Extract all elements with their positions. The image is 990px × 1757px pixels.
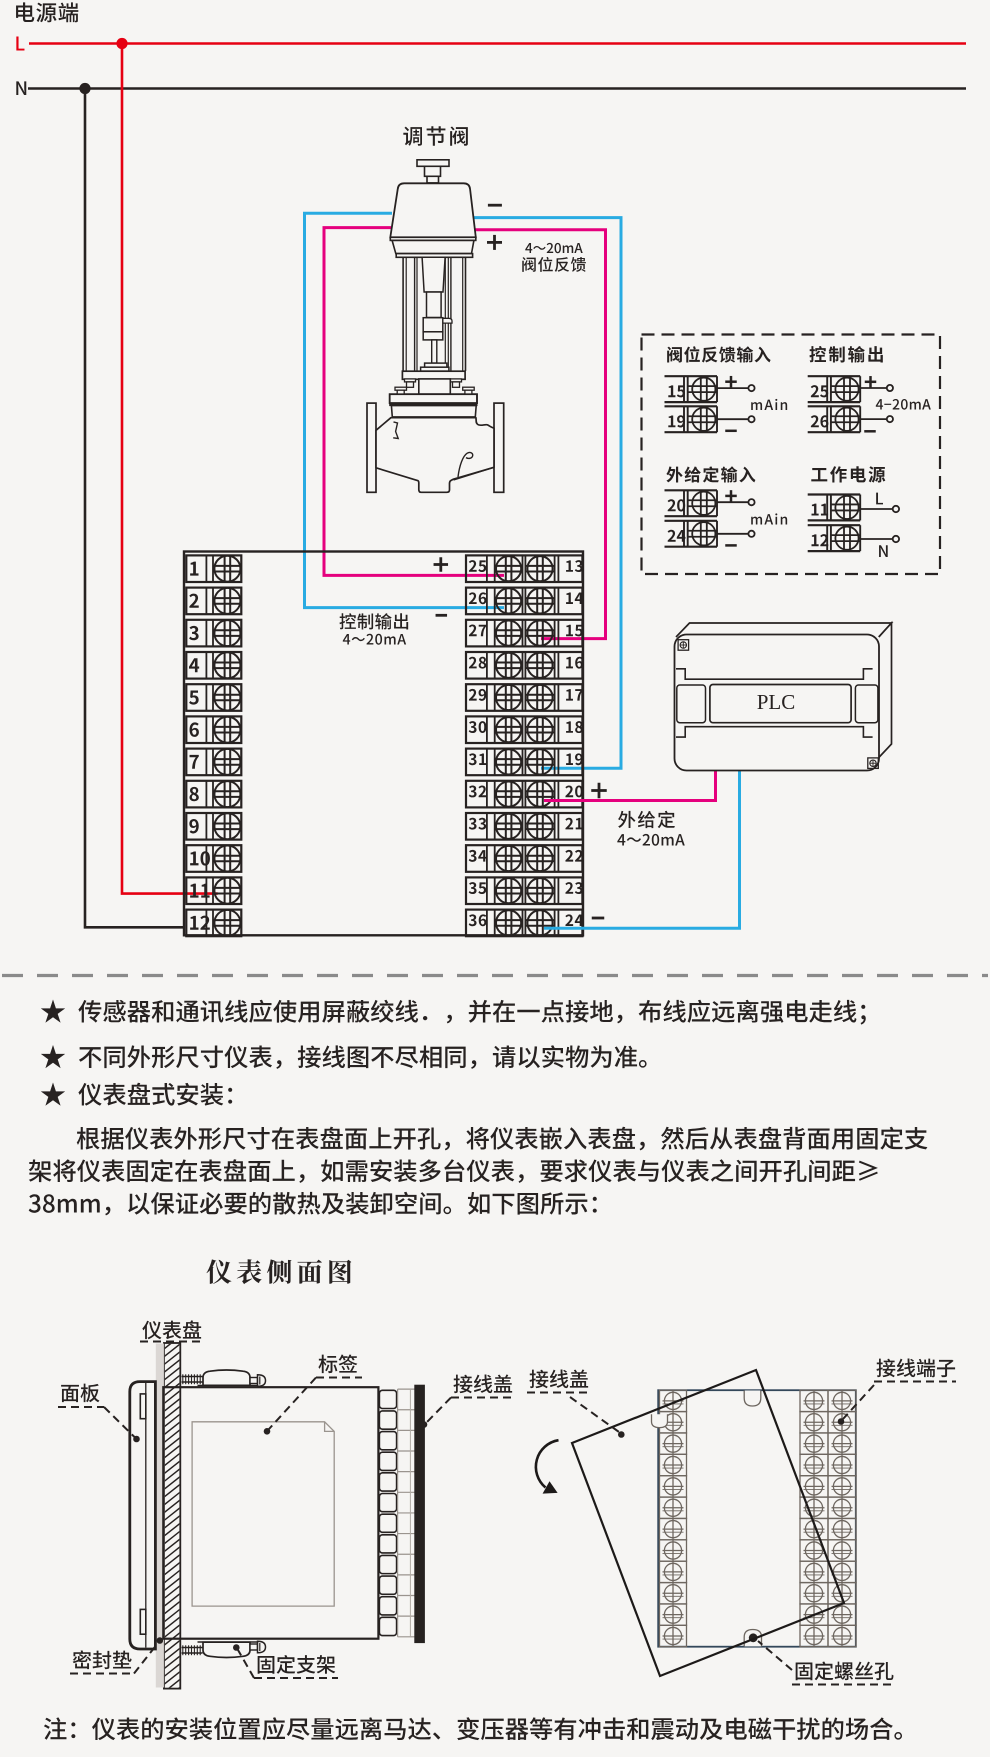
svg-text:PLC: PLC — [757, 690, 796, 714]
